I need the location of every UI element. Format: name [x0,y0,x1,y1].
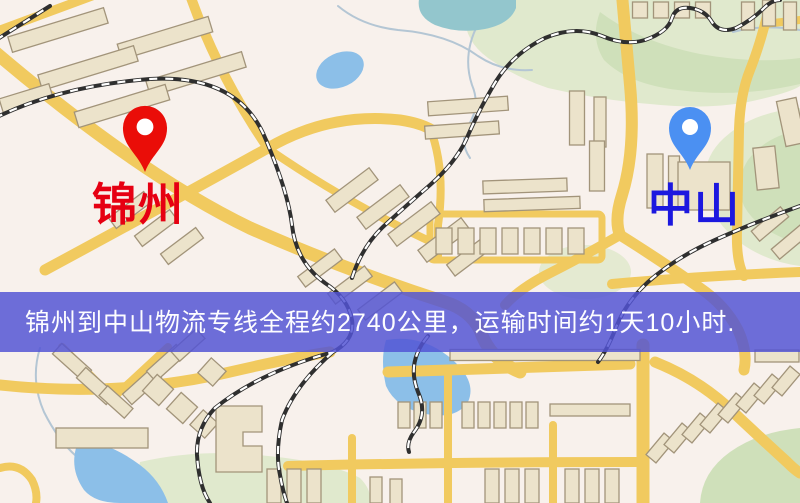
map-screenshot: 锦州 中山 锦州到中山物流专线全程约2740公里，运输时间约1天10小时. [0,0,800,503]
route-info-text: 锦州到中山物流专线全程约2740公里，运输时间约1天10小时. [25,309,735,337]
map-image[interactable]: 锦州 中山 锦州到中山物流专线全程约2740公里，运输时间约1天10小时. [0,0,800,503]
origin-city-label: 锦州 [92,179,184,230]
route-info-banner: 锦州到中山物流专线全程约2740公里，运输时间约1天10小时. [0,292,800,352]
destination-city-label: 中山 [648,180,740,231]
